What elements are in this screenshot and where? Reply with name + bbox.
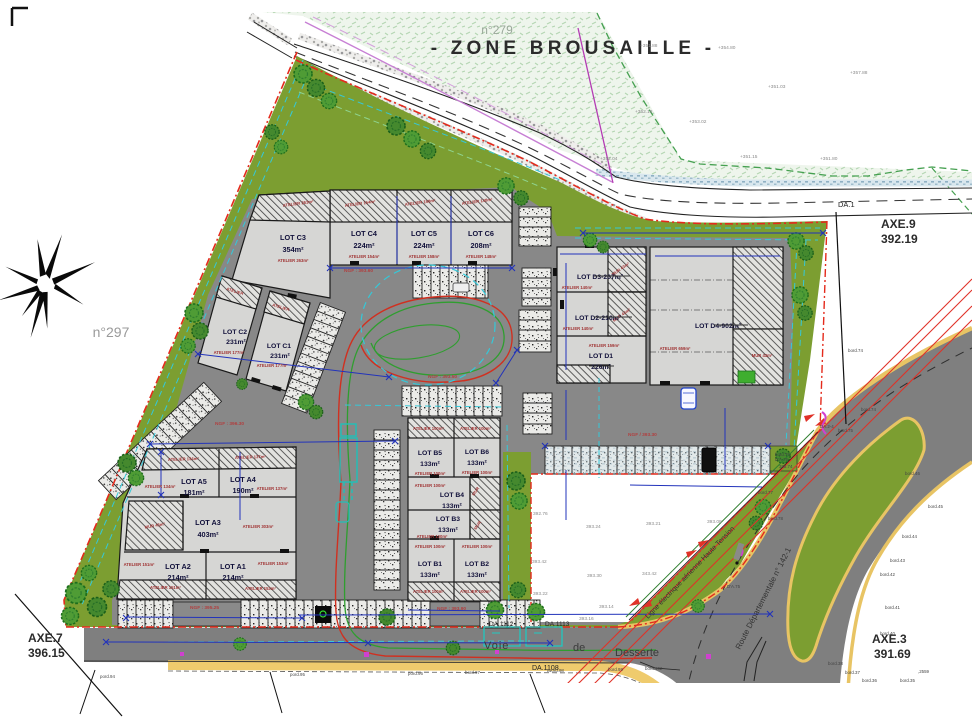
svg-text:ATELIER 303m²: ATELIER 303m²	[243, 524, 274, 529]
svg-text:+351.03: +351.03	[768, 84, 786, 90]
svg-text:LOT D1: LOT D1	[589, 353, 613, 360]
svg-text:133m²: 133m²	[438, 527, 458, 534]
svg-text:ATELIER 100m²: ATELIER 100m²	[417, 534, 448, 539]
svg-text:ATELIER 154m²: ATELIER 154m²	[349, 254, 380, 259]
svg-text:ATELIER 153m²: ATELIER 153m²	[258, 561, 289, 566]
svg-text:bord.97: bord.97	[465, 670, 480, 675]
svg-text:LOT B3: LOT B3	[436, 516, 460, 523]
svg-text:+351.80: +351.80	[820, 156, 838, 162]
svg-text:+357.88: +357.88	[850, 70, 868, 76]
svg-text:LOT D3-207m²: LOT D3-207m²	[577, 274, 624, 281]
svg-text:bord.44: bord.44	[902, 534, 917, 539]
svg-text:bord.46: bord.46	[905, 471, 920, 476]
svg-text:bord.35: bord.35	[900, 678, 915, 683]
svg-text:LOT C4: LOT C4	[351, 229, 378, 238]
svg-text:LOT A4: LOT A4	[230, 475, 257, 484]
svg-text:ATELIER 151m²: ATELIER 151m²	[150, 585, 181, 590]
svg-text:NGF : 393.60: NGF : 393.60	[344, 268, 373, 274]
svg-text:bord.38: bord.38	[828, 661, 843, 666]
svg-text:392.19: 392.19	[881, 232, 918, 246]
svg-text:ATELIER 140m²: ATELIER 140m²	[562, 285, 593, 290]
svg-text:LOT C2: LOT C2	[223, 329, 247, 336]
svg-text:ATELIER 137m²: ATELIER 137m²	[257, 486, 288, 491]
svg-text:ATELIER 100m²: ATELIER 100m²	[462, 470, 493, 475]
svg-text:bord.45: bord.45	[928, 504, 943, 509]
svg-text:LOT B4: LOT B4	[440, 492, 464, 499]
svg-text:ATELIER 100m²: ATELIER 100m²	[413, 589, 444, 594]
svg-text:LOT C6: LOT C6	[468, 229, 494, 238]
svg-text:392.76: 392.76	[533, 511, 548, 517]
svg-text:133m²: 133m²	[467, 572, 487, 579]
svg-text:ATELIER 158m²: ATELIER 158m²	[409, 254, 440, 259]
svg-text:ATELIER 134m²: ATELIER 134m²	[145, 484, 176, 489]
svg-text:ATELIER 263m²: ATELIER 263m²	[278, 258, 309, 263]
svg-text:ATELIER 100m²: ATELIER 100m²	[415, 544, 446, 549]
svg-text:LOT B5: LOT B5	[418, 450, 442, 457]
svg-text:MUR 43m²: MUR 43m²	[752, 353, 773, 358]
svg-text:bord.78: bord.78	[768, 516, 783, 521]
svg-text:n°279: n°279	[481, 23, 513, 37]
svg-text:231m²: 231m²	[226, 339, 246, 346]
svg-text:LOT B6: LOT B6	[465, 449, 489, 456]
svg-text:393.21: 393.21	[646, 521, 661, 527]
svg-text:bord.40: bord.40	[880, 631, 895, 636]
svg-text:- ZONE BROUSAILLE -: - ZONE BROUSAILLE -	[431, 38, 716, 59]
svg-text:133m²: 133m²	[467, 460, 487, 467]
svg-text:bord.74: bord.74	[848, 348, 863, 353]
svg-text:NGF : 395.25: NGF : 395.25	[190, 605, 219, 611]
svg-text:de: de	[573, 642, 585, 654]
svg-text:LOT A1: LOT A1	[220, 562, 246, 571]
svg-text:+351.15: +351.15	[740, 154, 758, 160]
svg-text:LOT A2: LOT A2	[165, 562, 191, 571]
svg-text:231m²: 231m²	[270, 353, 290, 360]
svg-text:NGF : 396.30: NGF : 396.30	[215, 421, 244, 427]
svg-text:ATELIER 659m²: ATELIER 659m²	[660, 346, 691, 351]
svg-text:214m²: 214m²	[167, 573, 189, 582]
svg-text:398.74: 398.74	[779, 464, 793, 469]
svg-text:ATELIER 177m²: ATELIER 177m²	[214, 350, 245, 355]
svg-text:pord.96: pord.96	[408, 671, 423, 676]
svg-text:bord.43: bord.43	[890, 558, 905, 563]
svg-text:LOT D2-210m²: LOT D2-210m²	[575, 315, 622, 322]
svg-text:ATELIER 100m²: ATELIER 100m²	[460, 426, 491, 431]
svg-text:AXE.9: AXE.9	[881, 217, 916, 231]
svg-text:190m²: 190m²	[232, 486, 254, 495]
svg-text:208m²: 208m²	[470, 241, 492, 250]
svg-text:DA.1113: DA.1113	[545, 621, 570, 628]
svg-text:DA.1112: DA.1112	[489, 621, 514, 628]
svg-text:ATELIER 100m²: ATELIER 100m²	[413, 426, 444, 431]
svg-text:ATELIER 153m²: ATELIER 153m²	[245, 586, 276, 591]
svg-text:ATELIER 100m²: ATELIER 100m²	[415, 483, 446, 488]
svg-text:bord.74: bord.74	[861, 407, 876, 412]
svg-text:ATELIER 177m²: ATELIER 177m²	[257, 363, 288, 368]
svg-text:403m²: 403m²	[197, 530, 219, 539]
svg-text:,2559: ,2559	[918, 669, 930, 674]
svg-text:n°297: n°297	[93, 324, 130, 340]
svg-text:224m²: 224m²	[353, 241, 375, 250]
svg-text:bord.42: bord.42	[880, 572, 895, 577]
svg-text:393.08: 393.08	[707, 519, 722, 525]
svg-text:LOT C1: LOT C1	[267, 343, 291, 350]
svg-text:ATELIER 100m²: ATELIER 100m²	[460, 589, 491, 594]
svg-text:393.22: 393.22	[533, 591, 548, 597]
svg-text:133m²: 133m²	[420, 572, 440, 579]
svg-text:354m²: 354m²	[282, 245, 304, 254]
svg-text:393.30: 393.30	[587, 573, 602, 579]
svg-text:LOT C5: LOT C5	[411, 229, 437, 238]
svg-text:bord.36: bord.36	[862, 678, 877, 683]
svg-text:pord.95: pord.95	[290, 672, 305, 677]
svg-text:bord.37: bord.37	[845, 670, 860, 675]
svg-text:bord.102: bord.102	[645, 666, 663, 671]
svg-text:396.15: 396.15	[28, 646, 65, 660]
svg-text:+354.80: +354.80	[718, 45, 736, 51]
svg-text:D'A.75: D'A.75	[775, 457, 789, 462]
svg-text:tword.98: tword.98	[547, 668, 564, 673]
svg-text:D'A.75: D'A.75	[727, 584, 741, 589]
svg-text:LOT A5: LOT A5	[181, 477, 207, 486]
svg-text:+352.18: +352.18	[635, 109, 653, 115]
svg-text:LOT A3: LOT A3	[195, 518, 221, 527]
svg-text:pord.94: pord.94	[100, 674, 115, 679]
svg-text:bord.99: bord.99	[608, 667, 623, 672]
svg-text:bord.41: bord.41	[885, 605, 900, 610]
svg-text:ATELIER 100m²: ATELIER 100m²	[415, 471, 446, 476]
svg-text:AXE.7: AXE.7	[28, 631, 63, 645]
svg-text:+352.04: +352.04	[600, 156, 618, 162]
svg-text:ATELIER 148m²: ATELIER 148m²	[466, 254, 497, 259]
svg-text:NGF : 393.50: NGF : 393.50	[428, 374, 457, 380]
svg-text:+353.02: +353.02	[689, 119, 707, 125]
svg-text:NGF : 393.90: NGF : 393.90	[437, 606, 466, 612]
svg-text:391.69: 391.69	[874, 647, 911, 661]
svg-text:214m²: 214m²	[222, 573, 244, 582]
svg-text:LOT B2: LOT B2	[465, 561, 489, 568]
svg-text:ATELIER 159m²: ATELIER 159m²	[589, 343, 620, 348]
svg-text:224m²: 224m²	[413, 241, 435, 250]
svg-text:ATELIER 100m²: ATELIER 100m²	[462, 544, 493, 549]
svg-text:393.24: 393.24	[586, 524, 601, 530]
svg-text:393.16: 393.16	[579, 616, 594, 622]
svg-text:bord.77: bord.77	[758, 490, 773, 495]
svg-text:181m²: 181m²	[183, 488, 205, 497]
svg-text:Desserte: Desserte	[615, 647, 659, 659]
svg-text:133m²: 133m²	[420, 461, 440, 468]
svg-text:LOT B1: LOT B1	[418, 561, 442, 568]
svg-text:bord.75: bord.75	[838, 428, 853, 433]
svg-text:LOT C3: LOT C3	[280, 233, 306, 242]
svg-text:ATELIER 151m²: ATELIER 151m²	[124, 562, 155, 567]
svg-text:ATELIER 140m²: ATELIER 140m²	[563, 326, 594, 331]
svg-text:DA.1: DA.1	[838, 200, 855, 209]
svg-text:133m²: 133m²	[442, 503, 462, 510]
svg-text:+351.88: +351.88	[640, 43, 658, 49]
svg-text:226m²: 226m²	[591, 364, 611, 371]
svg-text:NGF / 393.30: NGF / 393.30	[628, 432, 657, 438]
svg-text:393.14: 393.14	[599, 604, 614, 610]
svg-text:343.42: 343.42	[642, 571, 657, 577]
svg-text:DA.2-4: DA.2-4	[820, 424, 834, 429]
svg-text:393.42: 393.42	[532, 559, 547, 565]
svg-text:LOT D4-902m²: LOT D4-902m²	[695, 323, 742, 330]
